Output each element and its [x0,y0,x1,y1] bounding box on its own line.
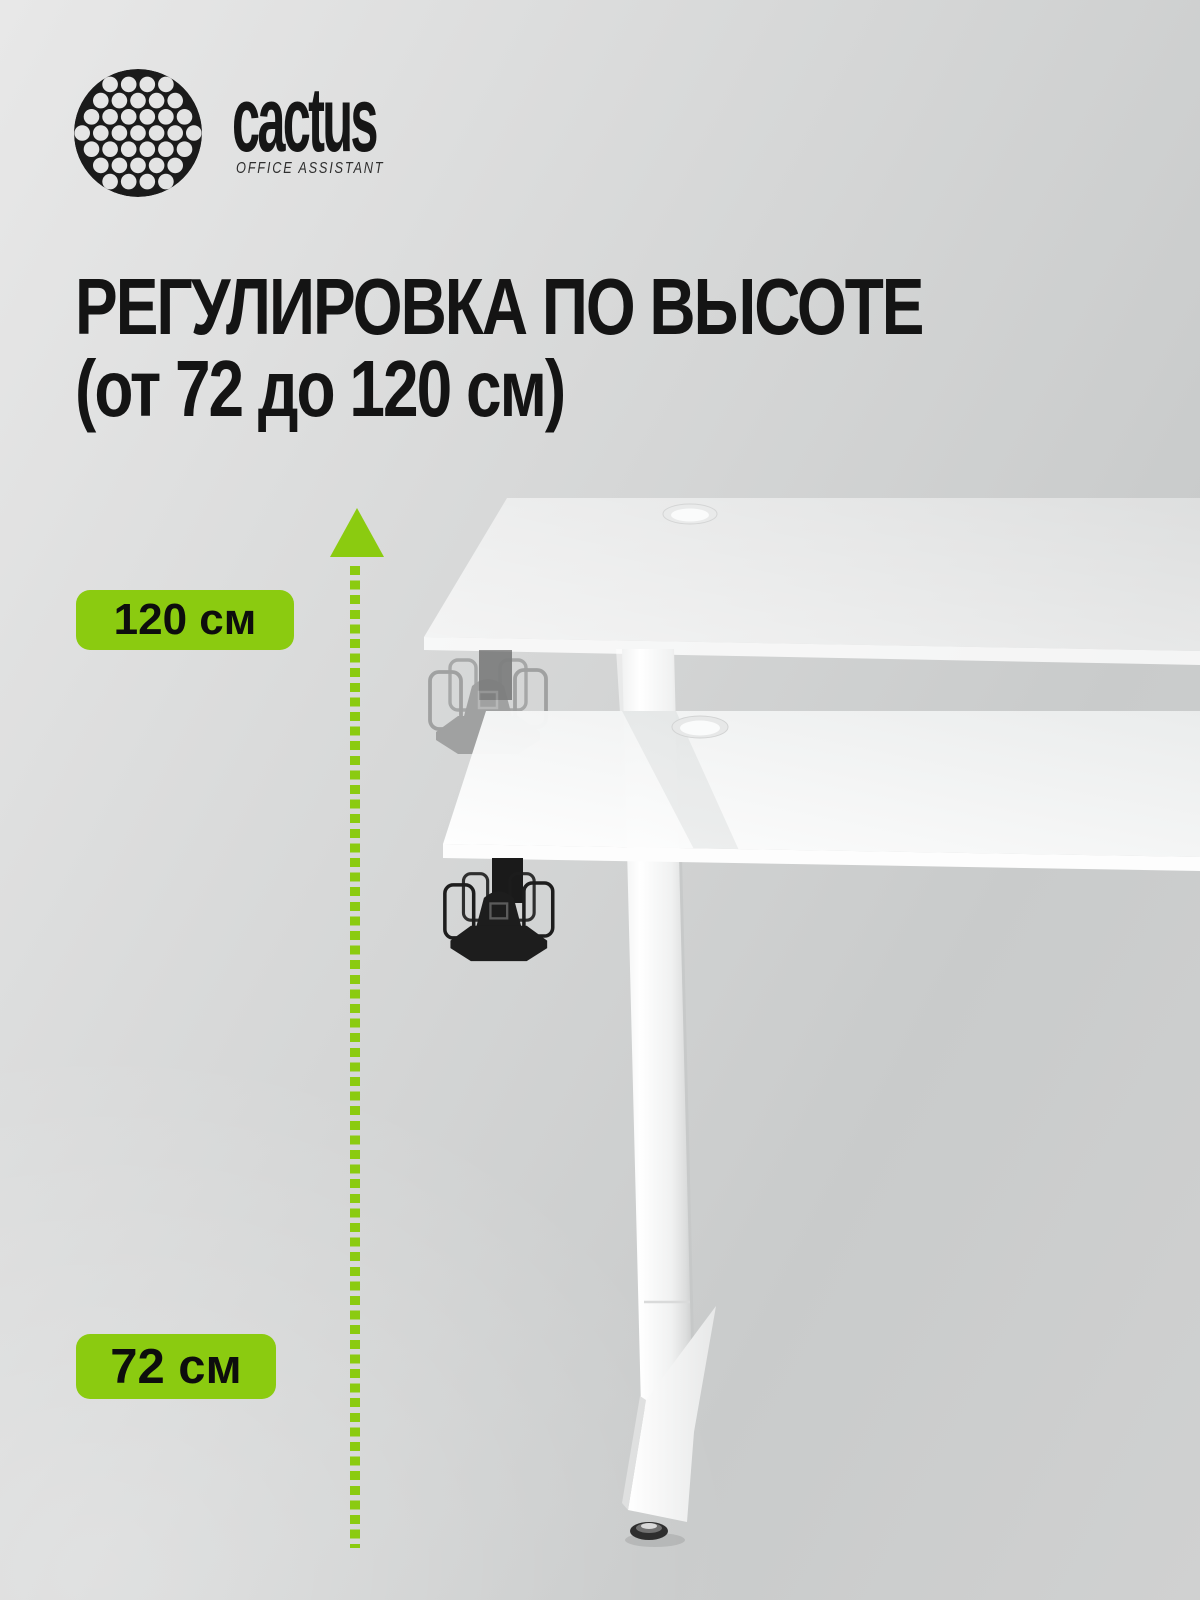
page-title-line1: РЕГУЛИРОВКА ПО ВЫСОТЕ [75,266,922,348]
cactus-logo-icon [74,69,202,197]
max-height-badge: 120 см [76,590,294,650]
grommet-lowered-inner [680,721,720,736]
height-arrow-icon [330,508,384,557]
height-arrow-dashed-line [350,566,360,1548]
desktop-lowered [443,711,1200,961]
grommet-raised-inner [671,509,709,522]
desktop-lowered-top [443,711,1200,857]
page-title-line2: (от 72 до 120 см) [75,348,922,430]
brand-name: cactus [232,74,376,166]
brand-tagline: OFFICE ASSISTANT [236,160,384,178]
page-title: РЕГУЛИРОВКА ПО ВЫСОТЕ (от 72 до 120 см) [75,266,922,430]
min-height-badge: 72 см [76,1334,276,1399]
foot-glide-cap [641,1523,657,1529]
product-banner: cactus OFFICE ASSISTANT РЕГУЛИРОВКА ПО В… [0,0,1200,1600]
desktop-raised-top [424,498,1200,651]
